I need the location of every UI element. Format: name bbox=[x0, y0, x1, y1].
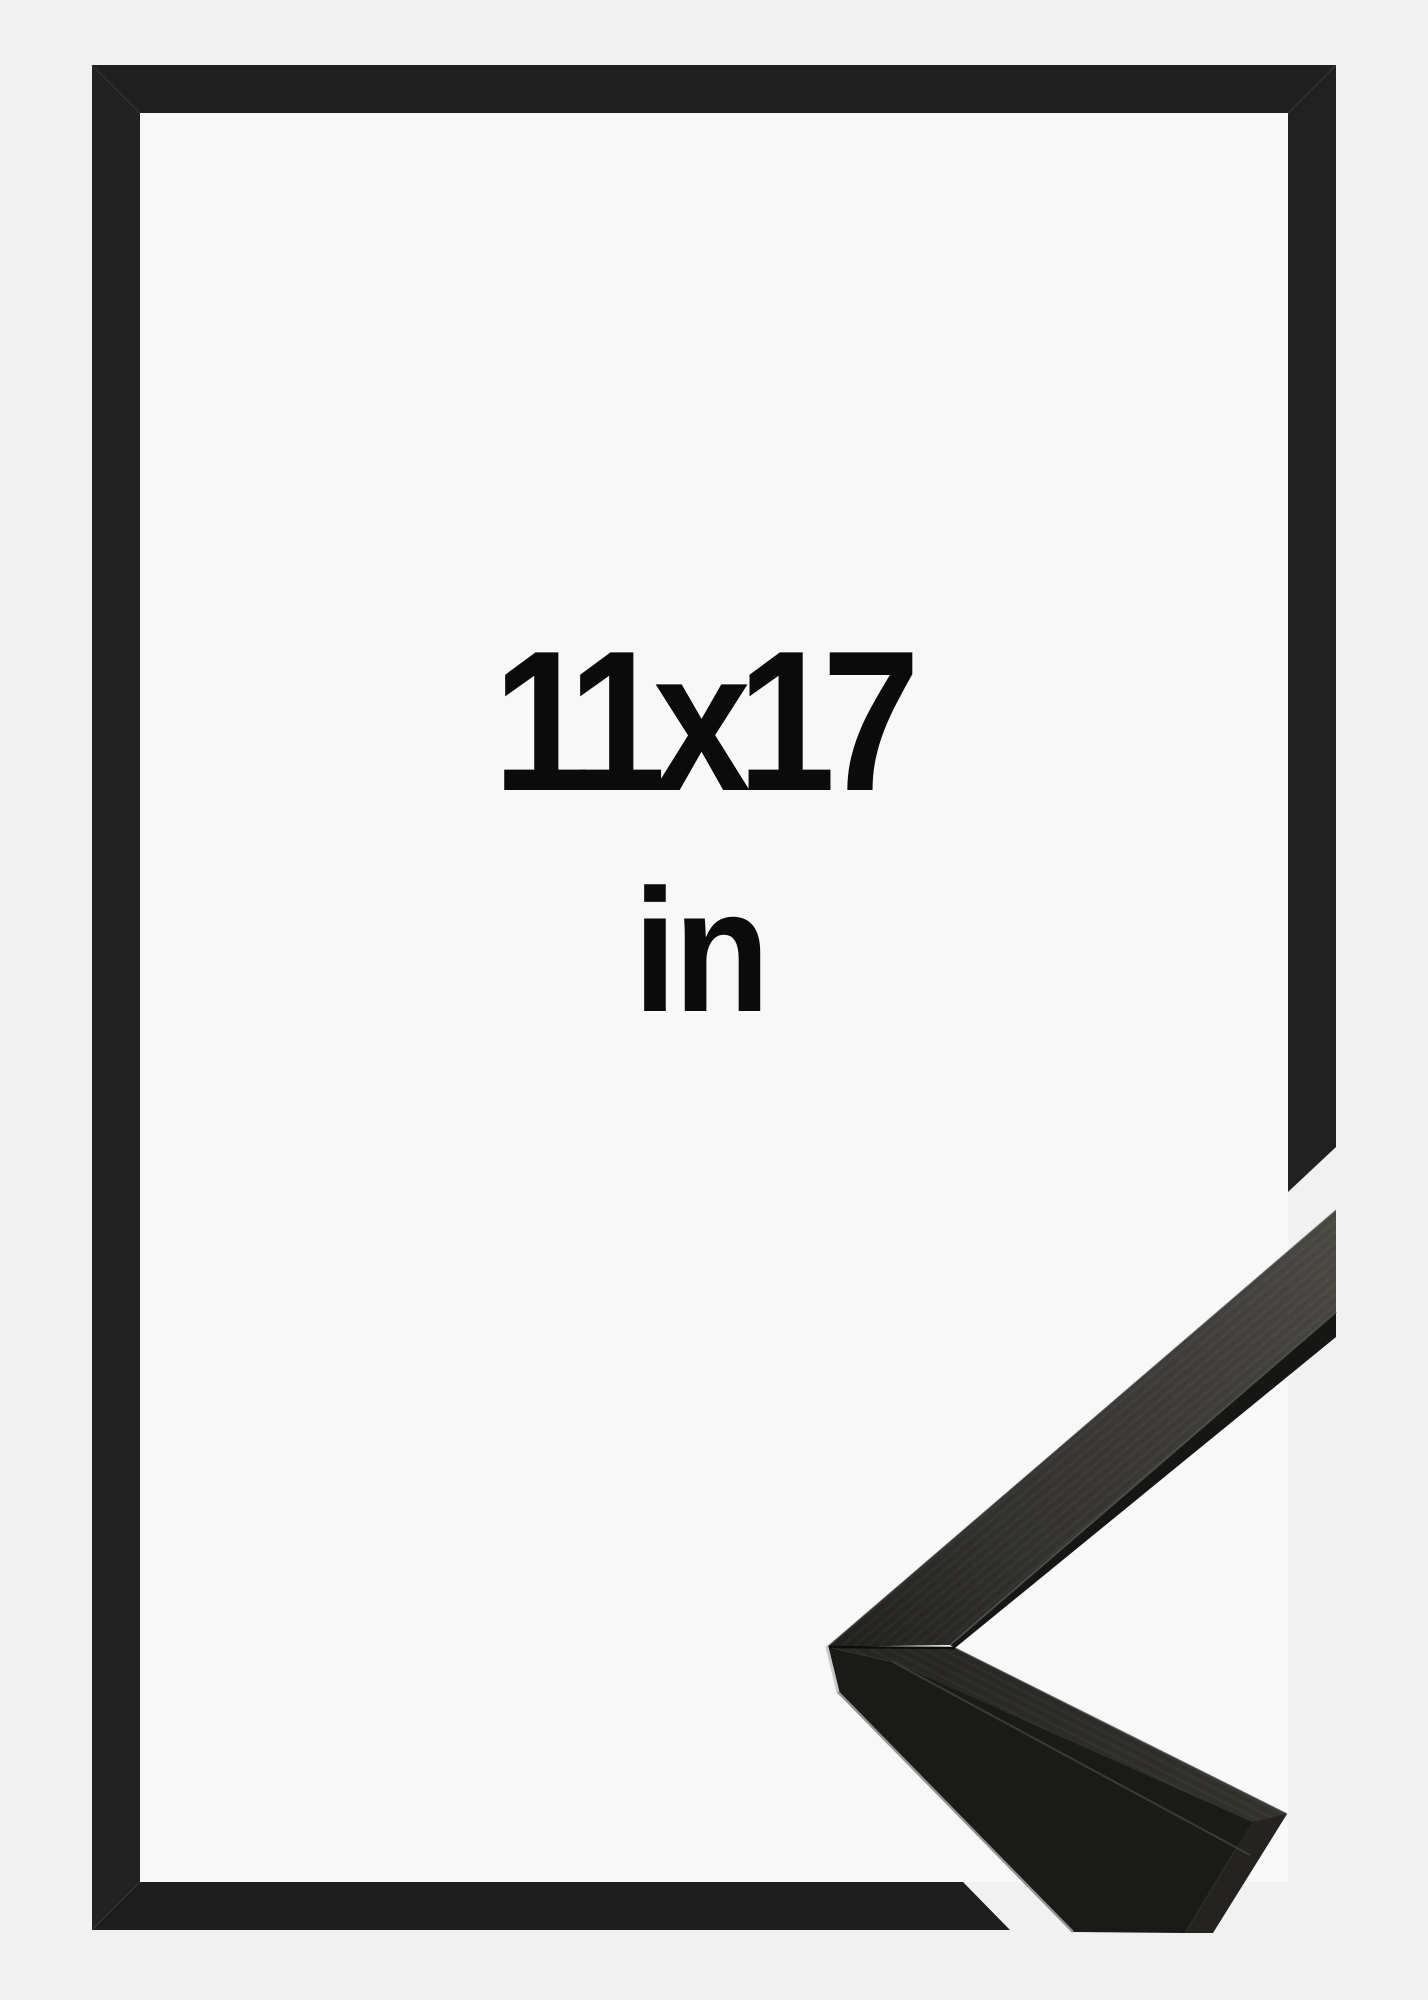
product-image: 11x17 in bbox=[0, 0, 1428, 2000]
unit-label: in bbox=[57, 856, 1342, 1049]
frame-bottom-bar bbox=[92, 1882, 1010, 1930]
sample-miter-seam bbox=[827, 1647, 955, 1648]
size-label: 11x17 bbox=[72, 612, 1329, 832]
frame-top-bar bbox=[92, 65, 1336, 113]
